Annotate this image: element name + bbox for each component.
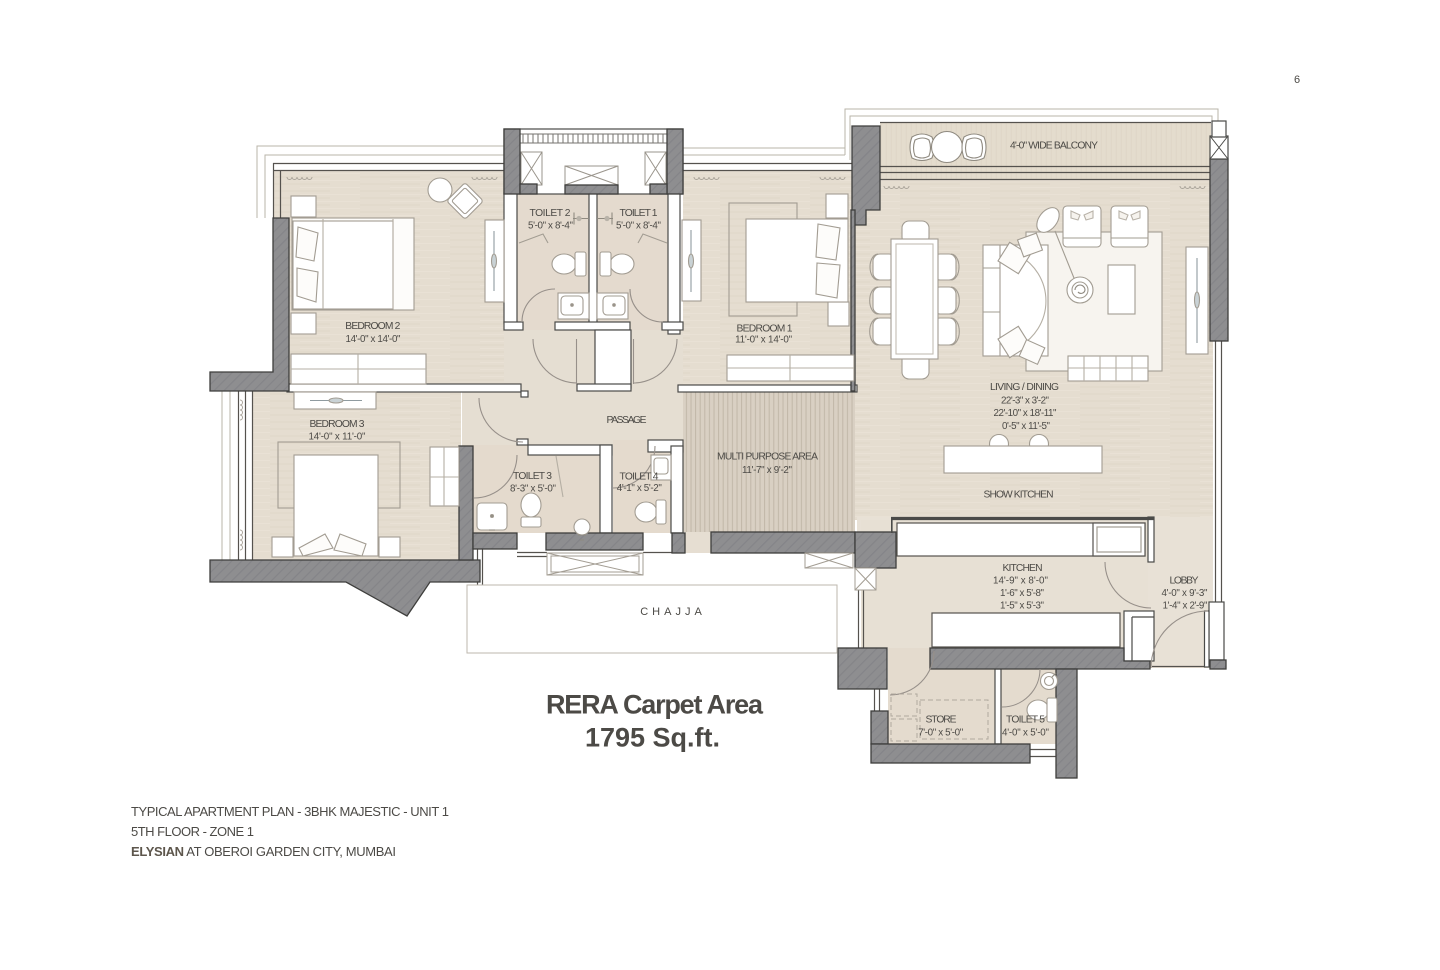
svg-text:22'-10" x 18'-11": 22'-10" x 18'-11" [994, 408, 1058, 419]
svg-text:TOILET 5: TOILET 5 [1006, 715, 1045, 726]
svg-text:1'-5" x 5'-3": 1'-5" x 5'-3" [1000, 601, 1045, 612]
svg-text:8'-3" x 5'-0": 8'-3" x 5'-0" [510, 484, 557, 495]
svg-text:1'-6" x 5'-8": 1'-6" x 5'-8" [1000, 588, 1045, 599]
svg-text:1795 Sq.ft.: 1795 Sq.ft. [585, 723, 720, 753]
svg-text:7'-0" x 5'-0": 7'-0" x 5'-0" [918, 728, 964, 739]
svg-text:5'-0" x 8'-4": 5'-0" x 8'-4" [528, 221, 574, 232]
svg-text:4'-0" x 5'-0": 4'-0" x 5'-0" [1002, 728, 1050, 739]
svg-text:TOILET 1: TOILET 1 [620, 208, 658, 219]
svg-text:5TH FLOOR - ZONE 1: 5TH FLOOR - ZONE 1 [131, 824, 254, 839]
svg-text:BEDROOM 2: BEDROOM 2 [345, 321, 400, 332]
svg-text:6: 6 [1294, 74, 1300, 86]
svg-text:ELYSIAN AT OBEROI GARDEN CITY,: ELYSIAN AT OBEROI GARDEN CITY, MUMBAI [131, 844, 396, 859]
svg-text:LOBBY: LOBBY [1170, 576, 1199, 587]
svg-text:11'-0" x 14'-0": 11'-0" x 14'-0" [735, 335, 793, 346]
svg-text:LIVING / DINING: LIVING / DINING [990, 382, 1059, 393]
svg-text:TOILET 4: TOILET 4 [620, 472, 659, 483]
svg-text:5'-0" x 8'-4": 5'-0" x 8'-4" [616, 221, 662, 232]
svg-text:14'-0" x 14'-0": 14'-0" x 14'-0" [346, 334, 402, 345]
svg-text:4'-0" x 9'-3": 4'-0" x 9'-3" [1162, 588, 1209, 599]
svg-text:MULTI PURPOSE AREA: MULTI PURPOSE AREA [717, 452, 818, 463]
svg-text:BEDROOM 3: BEDROOM 3 [310, 419, 365, 430]
svg-text:RERA Carpet Area: RERA Carpet Area [546, 690, 764, 720]
svg-text:11'-7" x 9'-2": 11'-7" x 9'-2" [742, 465, 793, 476]
svg-text:4'-1" x 5'-2": 4'-1" x 5'-2" [617, 483, 663, 494]
svg-text:CHAJJA: CHAJJA [640, 606, 706, 618]
svg-text:TOILET 3: TOILET 3 [513, 471, 552, 482]
svg-text:1'-4" x 2'-9": 1'-4" x 2'-9" [1163, 601, 1209, 612]
svg-text:0'-5" x 11'-5": 0'-5" x 11'-5" [1002, 421, 1051, 432]
svg-text:PASSAGE: PASSAGE [607, 415, 647, 426]
svg-text:KITCHEN: KITCHEN [1003, 563, 1043, 574]
svg-text:SHOW KITCHEN: SHOW KITCHEN [984, 490, 1054, 501]
svg-text:4'-0" WIDE BALCONY: 4'-0" WIDE BALCONY [1010, 141, 1098, 152]
svg-text:22'-3" x 3'-2": 22'-3" x 3'-2" [1001, 396, 1050, 407]
svg-text:TYPICAL APARTMENT PLAN - 3BHK: TYPICAL APARTMENT PLAN - 3BHK MAJESTIC -… [131, 804, 449, 819]
svg-text:TOILET 2: TOILET 2 [530, 208, 571, 219]
svg-text:14'-0" x 11'-0": 14'-0" x 11'-0" [309, 432, 367, 443]
svg-text:14'-9" x 8'-0": 14'-9" x 8'-0" [993, 576, 1049, 587]
svg-text:BEDROOM 1: BEDROOM 1 [737, 324, 793, 335]
svg-text:STORE: STORE [926, 715, 957, 726]
